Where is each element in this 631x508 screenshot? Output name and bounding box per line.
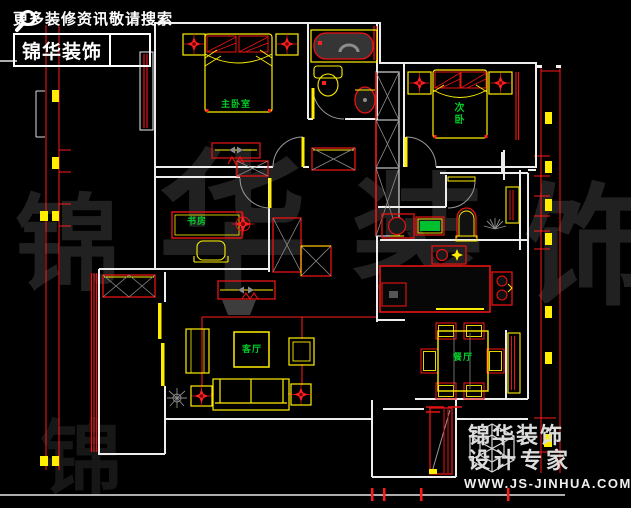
plant <box>167 388 187 408</box>
brand-name: 锦华装饰 <box>15 35 109 65</box>
room-label-second-bedroom: 次卧 <box>452 102 462 126</box>
room-label-dining-room: 餐厅 <box>453 353 473 362</box>
television <box>222 300 256 315</box>
speaker <box>291 384 311 405</box>
living-room <box>167 281 376 410</box>
company-logo: 锦华装饰 设计专家 WWW.JS-JINHUA.COM <box>464 421 631 491</box>
dining-chair <box>487 349 504 373</box>
tv-cabinet <box>218 281 275 299</box>
counter-island <box>380 266 490 312</box>
dimension-lines-right <box>534 65 561 473</box>
walls <box>99 23 536 477</box>
cube-logo-icon <box>464 421 520 477</box>
armchair <box>186 329 209 373</box>
bath2-door-arc <box>448 181 475 208</box>
floorplan-screenshot: 锦 华 装 饰 锦 <box>0 0 631 508</box>
kitchen <box>380 246 512 312</box>
toilet <box>456 208 477 241</box>
window <box>508 333 520 393</box>
bathtub <box>311 30 377 62</box>
magnifier-button <box>109 35 149 65</box>
promo-search-block: 更多装修资讯敬请搜索 锦华装饰 <box>13 8 173 67</box>
wash-basin <box>355 87 375 113</box>
logo-website: WWW.JS-JINHUA.COM <box>464 476 631 491</box>
study-corner-cabinet <box>237 161 268 176</box>
study-door-arc <box>240 178 270 208</box>
bathroom-1 <box>311 30 377 113</box>
search-icon <box>13 8 39 34</box>
bathroom-2 <box>382 187 519 241</box>
room-label-living-room: 客厅 <box>242 345 262 354</box>
dimension-lines-left <box>36 25 71 470</box>
master-door-arc <box>273 137 303 167</box>
washing-machine <box>416 217 444 235</box>
cooktop <box>432 246 466 264</box>
sink-unit <box>492 272 512 305</box>
side-table <box>289 338 314 365</box>
balcony-sliding-door <box>158 303 165 386</box>
toilet <box>314 66 342 96</box>
bath1-door-arc <box>313 88 344 119</box>
dining-chair <box>421 349 438 373</box>
entry <box>429 408 452 474</box>
search-box: 锦华装饰 <box>13 33 151 67</box>
vanity-basin <box>382 214 414 238</box>
speaker <box>191 386 212 406</box>
sofa <box>213 379 289 410</box>
compass-symbol <box>232 213 255 236</box>
corridor-closet <box>273 218 331 276</box>
balcony-cabinet <box>103 275 155 297</box>
plant <box>484 218 506 229</box>
bedroom2-door-arc <box>406 137 436 167</box>
wardrobe-column <box>376 72 399 236</box>
window <box>506 187 519 223</box>
desk-chair <box>194 241 228 262</box>
room-label-study: 书房 <box>187 217 207 226</box>
study <box>172 212 255 262</box>
room-label-master-bedroom: 主卧室 <box>221 100 251 109</box>
hall-cabinet <box>312 148 355 170</box>
